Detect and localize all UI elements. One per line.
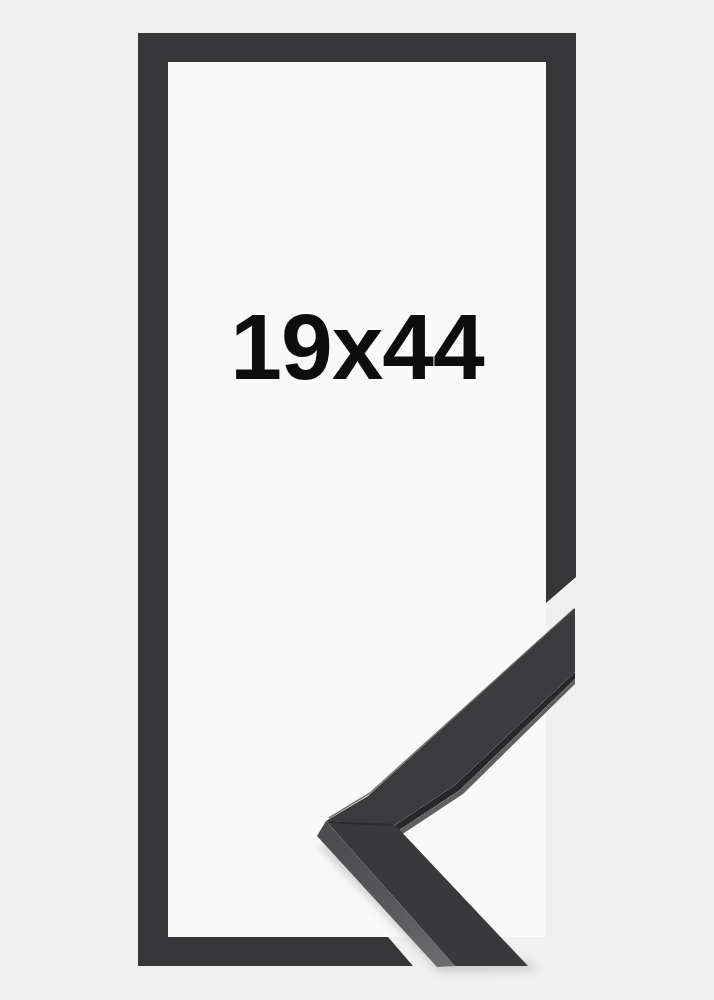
product-image: 19x44 bbox=[0, 0, 714, 1000]
size-label: 19x44 bbox=[0, 288, 714, 406]
frame-mockup-canvas bbox=[0, 0, 714, 1000]
